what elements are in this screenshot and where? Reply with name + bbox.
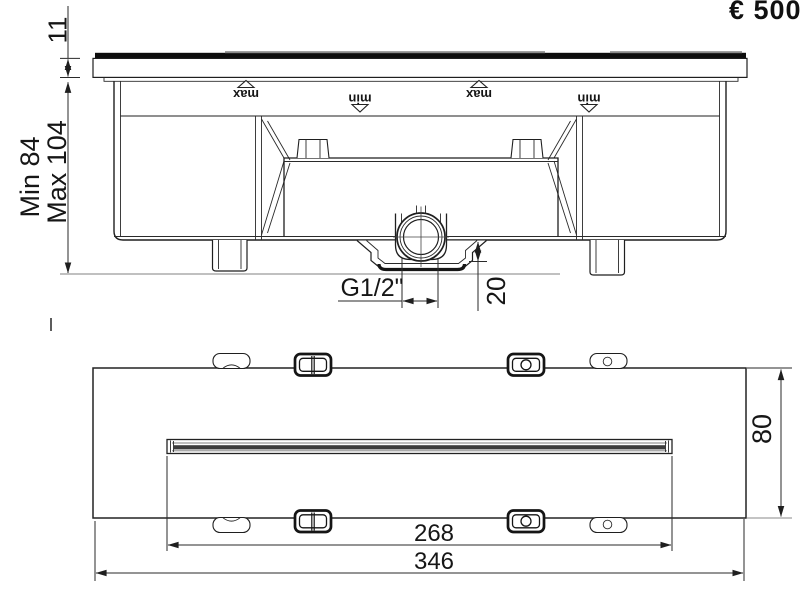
section-view: max min max min 11: [15, 6, 747, 331]
max-marker-label: max: [465, 87, 492, 102]
fixing-clip-tab: [213, 354, 250, 369]
dim-depth-min-label: Min 84: [15, 136, 45, 217]
fixing-clip-clamp: [508, 354, 544, 376]
dim-inlet-offset-label: 20: [481, 277, 511, 306]
wall-plate: [93, 58, 747, 81]
min-marker: min: [348, 92, 371, 113]
fixing-clip-clamp: [508, 511, 544, 533]
dim-overall-depth: 80: [747, 368, 792, 518]
technical-drawing-page: € 500: [0, 0, 800, 610]
dim-slot-width-label: 268: [414, 520, 454, 547]
dim-overall-depth-label: 80: [747, 414, 777, 444]
fixing-clip-tab: [590, 354, 627, 369]
fixing-clip-clamp: [295, 511, 331, 533]
dim-recess-depth: Min 84 Max 104: [15, 82, 72, 273]
max-marker: max: [232, 81, 259, 103]
fixing-clip-tab: [213, 518, 250, 533]
spout-slot: [167, 440, 672, 454]
built-in-spout-drawing: max min max min 11: [0, 0, 800, 610]
thread-size-label: G1/2": [340, 274, 403, 302]
spout-outlet-pipe: [393, 206, 449, 268]
dim-plate-thickness-label: 11: [43, 17, 73, 44]
min-marker: min: [577, 92, 600, 113]
dim-inlet-offset: 20: [469, 242, 511, 311]
dim-plate-thickness: 11: [43, 6, 81, 78]
fixing-clip-clamp: [295, 354, 331, 376]
plan-view: 80 268 346: [93, 354, 792, 582]
dim-depth-max-label: Max 104: [42, 120, 72, 224]
max-marker-label: max: [232, 87, 259, 102]
fixing-clip-tab: [590, 518, 627, 533]
spout-front-band: [95, 51, 746, 58]
dim-overall-width-label: 346: [414, 548, 454, 575]
max-marker: max: [465, 81, 492, 103]
